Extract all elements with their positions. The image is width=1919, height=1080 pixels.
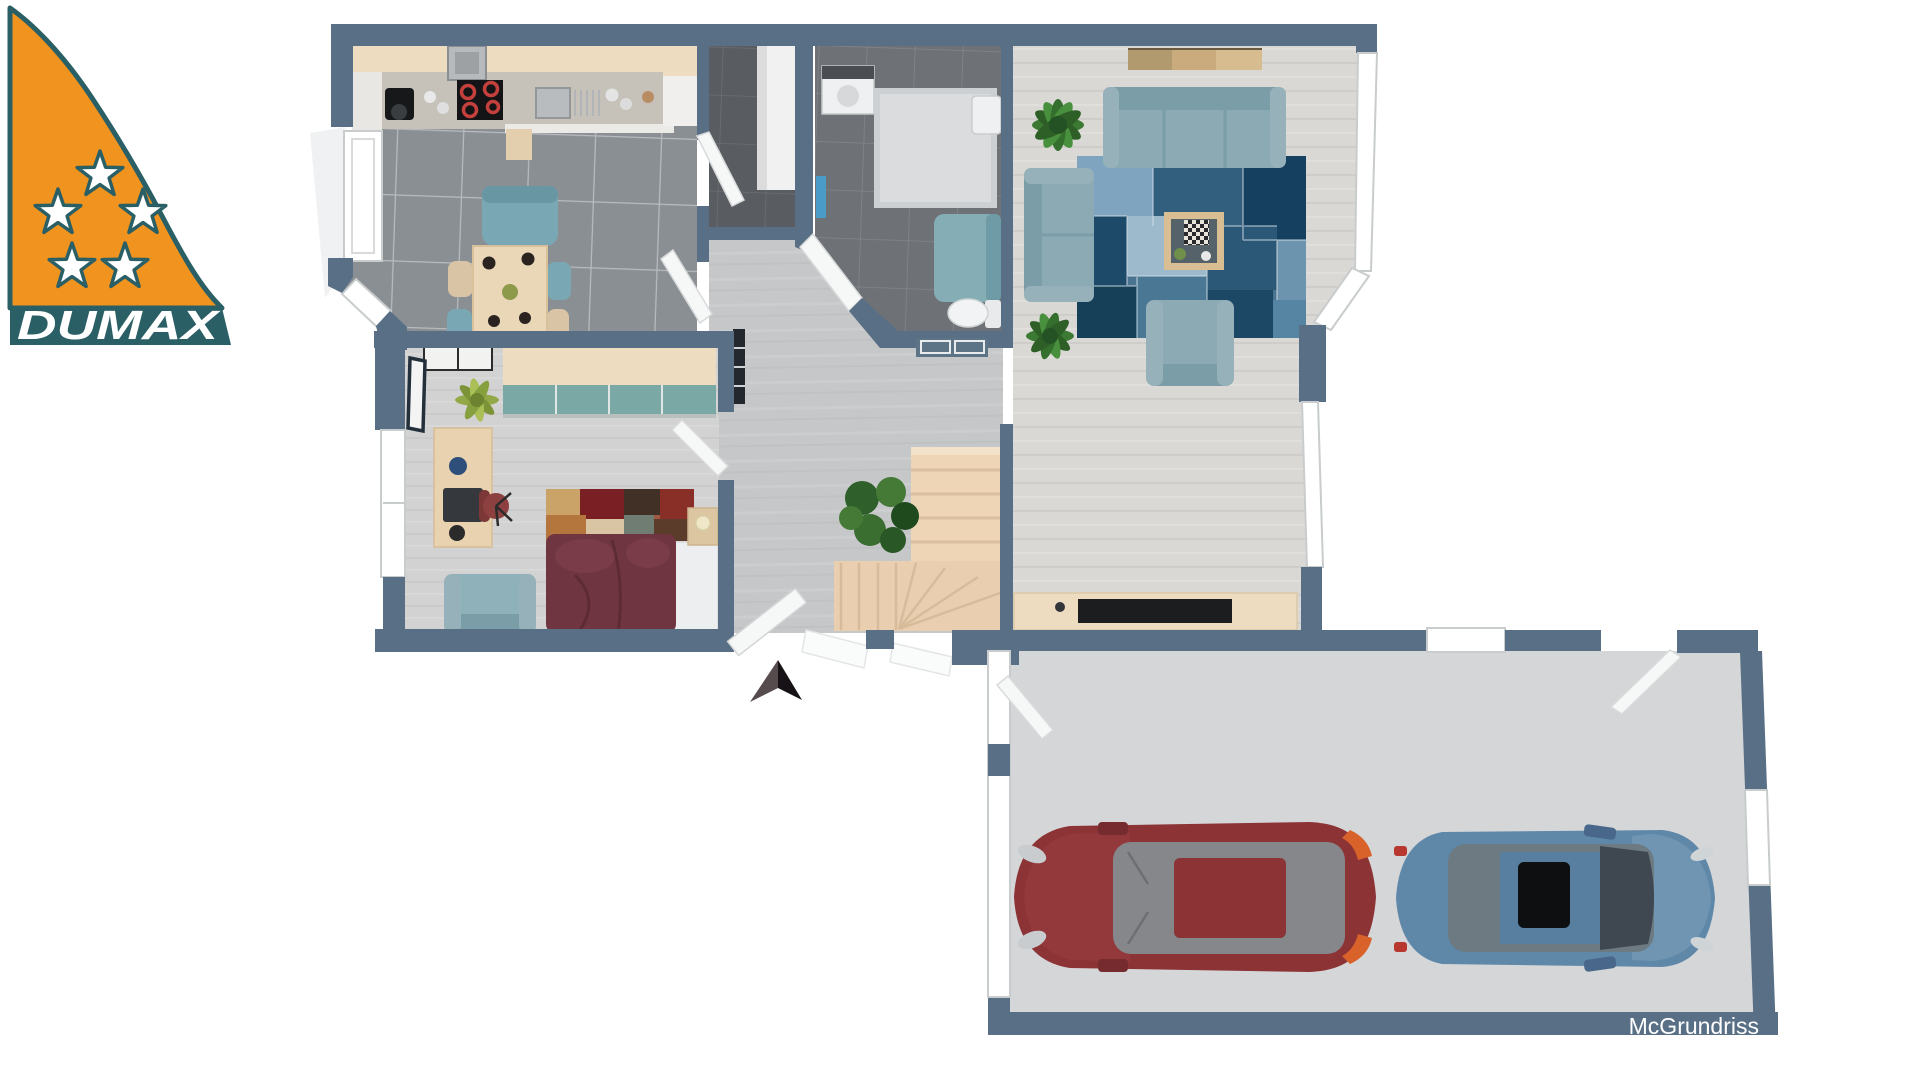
svg-text:McGrundriss: McGrundriss — [1629, 1013, 1759, 1039]
svg-text:DUMAX: DUMAX — [17, 302, 222, 348]
